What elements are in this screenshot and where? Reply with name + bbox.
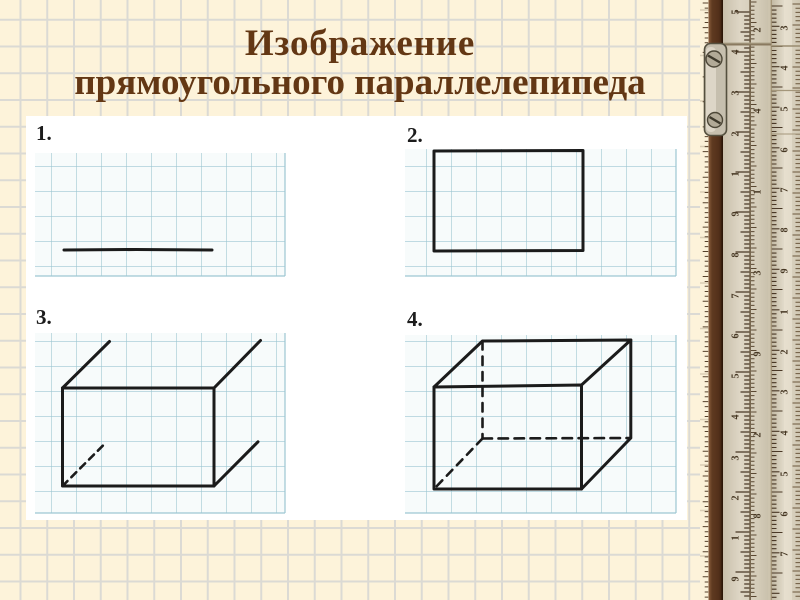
svg-text:6: 6 (731, 334, 742, 339)
svg-text:3: 3 (780, 390, 791, 395)
svg-text:3: 3 (731, 91, 742, 96)
svg-text:1: 1 (731, 536, 742, 541)
svg-text:6: 6 (780, 148, 791, 153)
svg-text:4: 4 (780, 66, 791, 71)
svg-text:2: 2 (753, 433, 764, 438)
svg-text:8: 8 (753, 514, 764, 519)
svg-text:1: 1 (780, 310, 791, 315)
svg-text:9: 9 (731, 212, 742, 217)
svg-text:2: 2 (753, 28, 764, 33)
svg-text:5: 5 (780, 107, 791, 112)
svg-text:2: 2 (731, 496, 742, 501)
svg-text:4: 4 (731, 415, 742, 420)
svg-text:3: 3 (753, 271, 764, 276)
svg-text:7: 7 (731, 294, 742, 299)
svg-text:8: 8 (731, 253, 742, 258)
svg-text:7: 7 (780, 552, 791, 557)
svg-text:4: 4 (753, 109, 764, 114)
svg-text:2: 2 (731, 132, 742, 137)
svg-text:8: 8 (780, 228, 791, 233)
svg-text:5: 5 (780, 472, 791, 477)
svg-text:2: 2 (780, 350, 791, 355)
svg-text:5: 5 (731, 10, 742, 15)
svg-text:1.: 1. (36, 121, 52, 145)
svg-text:7: 7 (780, 188, 791, 193)
svg-text:4: 4 (780, 431, 791, 436)
svg-text:2.: 2. (407, 123, 423, 147)
svg-text:9: 9 (731, 577, 742, 582)
svg-text:1: 1 (753, 190, 764, 195)
svg-text:6: 6 (780, 512, 791, 517)
svg-text:3: 3 (731, 456, 742, 461)
svg-text:1: 1 (731, 172, 742, 177)
svg-text:3.: 3. (36, 305, 52, 329)
svg-text:9: 9 (780, 269, 791, 274)
svg-text:5: 5 (731, 374, 742, 379)
svg-text:9: 9 (753, 352, 764, 357)
svg-text:4: 4 (731, 50, 742, 55)
svg-text:3: 3 (780, 26, 791, 31)
svg-text:4.: 4. (407, 307, 423, 331)
